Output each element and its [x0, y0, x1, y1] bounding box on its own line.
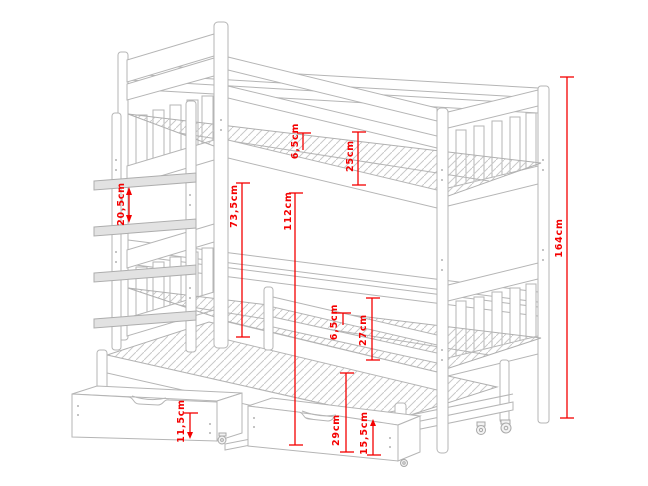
dimension-label: 73,5cm: [229, 184, 240, 228]
dimension-label: 25cm: [345, 140, 356, 172]
bunk-bed-diagram: 6,5cm 25cm 20,5cm 73,5cm 112cm 164cm 6,5…: [0, 0, 648, 486]
foot-near-post: [437, 108, 448, 453]
dimension-label: 164cm: [554, 218, 565, 257]
technical-drawing: 6,5cm 25cm 20,5cm 73,5cm 112cm 164cm 6,5…: [0, 0, 648, 486]
dimension-label: 20,5cm: [116, 182, 127, 226]
caster-wheel-icon: [218, 433, 226, 444]
dimension-label: 6,5cm: [290, 123, 301, 159]
dimension-label: 112cm: [283, 191, 294, 230]
dimension-label: 29cm: [331, 414, 342, 446]
caster-wheel-icon: [477, 422, 486, 435]
dimension-label: 6,5cm: [329, 304, 340, 340]
caster-wheel-icon: [501, 420, 511, 433]
dimension-label: 15,5cm: [359, 411, 370, 455]
dimension-ladder-rung-spacing: 20,5cm: [116, 182, 132, 226]
dimension-label: 27cm: [358, 314, 369, 346]
dimension-label: 11,5cm: [176, 399, 187, 443]
storage-drawer-left: [72, 386, 242, 444]
head-near-post: [214, 22, 228, 348]
caster-wheel-icon: [401, 460, 408, 467]
